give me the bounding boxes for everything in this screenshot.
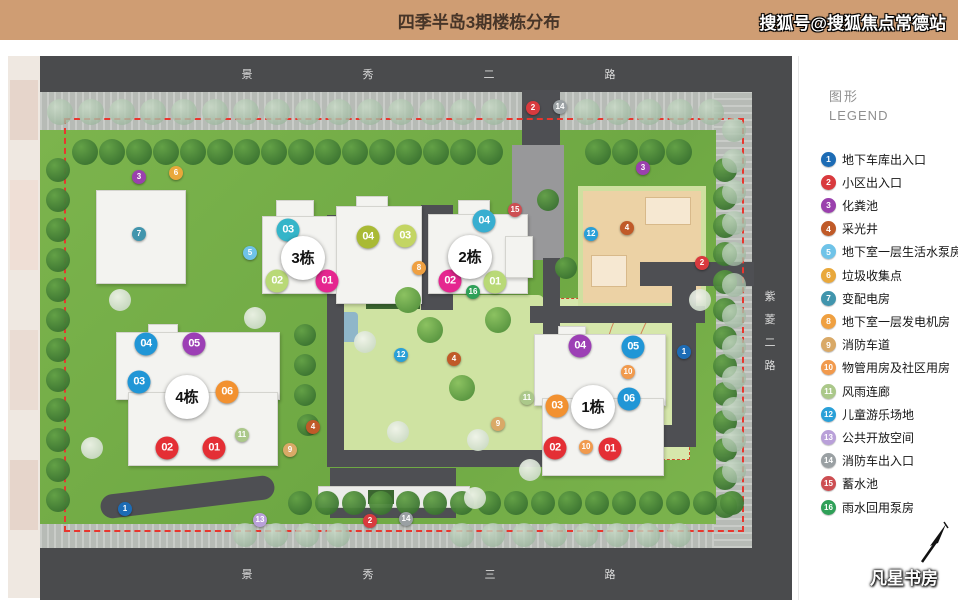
building-label-4栋: 4栋 bbox=[165, 375, 209, 419]
tree bbox=[244, 307, 266, 329]
tree bbox=[78, 99, 104, 125]
legend-item-16: 16雨水回用泵房 bbox=[821, 499, 914, 515]
tree bbox=[485, 307, 511, 333]
tree bbox=[342, 491, 366, 515]
unit-badge-b4-04: 04 bbox=[135, 333, 158, 356]
tree bbox=[574, 523, 598, 547]
legend-label: 采光井 bbox=[842, 220, 878, 237]
legend-badge: 13 bbox=[821, 430, 836, 445]
tree bbox=[417, 317, 443, 343]
brand-logo-icon bbox=[834, 562, 862, 590]
legend-title-cn: 图形 bbox=[829, 86, 859, 105]
adjacent-building bbox=[10, 80, 38, 140]
road-top bbox=[40, 56, 792, 92]
legend-label: 化粪池 bbox=[842, 197, 878, 214]
tree bbox=[555, 257, 577, 279]
map-marker-12: 12 bbox=[394, 348, 408, 362]
legend-item-8: 8地下室一层发电机房 bbox=[821, 313, 950, 329]
tree bbox=[722, 335, 746, 359]
tree bbox=[722, 304, 746, 328]
tree bbox=[202, 99, 228, 125]
tree bbox=[605, 99, 631, 125]
legend-badge: 2 bbox=[821, 175, 836, 190]
tree bbox=[531, 491, 555, 515]
map-marker-5: 5 bbox=[243, 246, 257, 260]
road-label-top: 秀 bbox=[363, 66, 374, 82]
legend-title-en: LEGEND bbox=[829, 108, 888, 123]
tree bbox=[585, 491, 609, 515]
map-marker-1: 1 bbox=[677, 345, 691, 359]
tree bbox=[666, 139, 692, 165]
unit-badge-b1-01: 01 bbox=[599, 438, 622, 461]
tree bbox=[722, 242, 746, 266]
tree bbox=[46, 398, 70, 422]
legend-label: 消防车出入口 bbox=[842, 452, 914, 469]
tree bbox=[667, 523, 691, 547]
tree bbox=[639, 491, 663, 515]
tree bbox=[295, 99, 321, 125]
unit-badge-b4-03: 03 bbox=[128, 371, 151, 394]
legend-item-6: 6垃圾收集点 bbox=[821, 267, 902, 283]
tree bbox=[354, 331, 376, 353]
site-boundary bbox=[64, 118, 744, 532]
unit-badge-b4-02: 02 bbox=[156, 437, 179, 460]
tree bbox=[261, 139, 287, 165]
tree bbox=[234, 139, 260, 165]
legend-label: 地下车库出入口 bbox=[842, 151, 926, 168]
tree bbox=[264, 99, 290, 125]
tree bbox=[233, 523, 257, 547]
tree bbox=[574, 99, 600, 125]
tree bbox=[46, 188, 70, 212]
map-marker-6: 6 bbox=[169, 166, 183, 180]
tree bbox=[295, 523, 319, 547]
map-marker-10: 10 bbox=[579, 440, 593, 454]
tree bbox=[612, 139, 638, 165]
tree bbox=[264, 523, 288, 547]
legend-panel: 图形 LEGEND 1地下车库出入口2小区出入口3化粪池4采光井5地下室一层生活… bbox=[798, 56, 958, 600]
tree bbox=[693, 491, 717, 515]
page: 四季半岛3期楼栋分布 搜狐号@搜狐焦点常德站 bbox=[0, 0, 958, 608]
tree bbox=[395, 287, 421, 313]
tree bbox=[288, 491, 312, 515]
legend-badge: 8 bbox=[821, 314, 836, 329]
tree bbox=[722, 118, 746, 142]
road-right bbox=[752, 56, 792, 600]
tree bbox=[450, 523, 474, 547]
map-marker-3: 3 bbox=[636, 161, 650, 175]
adjacent-building bbox=[10, 330, 38, 410]
tree bbox=[81, 437, 103, 459]
tree bbox=[233, 99, 259, 125]
tree bbox=[464, 487, 486, 509]
legend-label: 雨水回用泵房 bbox=[842, 499, 914, 516]
tree bbox=[46, 458, 70, 482]
legend-label: 地下室一层生活水泵房 bbox=[842, 243, 958, 260]
legend-label: 垃圾收集点 bbox=[842, 267, 902, 284]
tree bbox=[481, 99, 507, 125]
tree bbox=[467, 429, 489, 451]
legend-item-7: 7变配电房 bbox=[821, 290, 890, 306]
tree bbox=[450, 139, 476, 165]
unit-badge-b2-03: 03 bbox=[394, 225, 417, 248]
legend-item-5: 5地下室一层生活水泵房 bbox=[821, 244, 958, 260]
tree bbox=[99, 139, 125, 165]
tree bbox=[636, 99, 662, 125]
tree bbox=[326, 99, 352, 125]
tree bbox=[722, 459, 746, 483]
map-marker-11: 11 bbox=[520, 391, 534, 405]
map-marker-12: 12 bbox=[584, 227, 598, 241]
road-label-right: 二 bbox=[765, 334, 776, 350]
building-label-1栋: 1栋 bbox=[571, 385, 615, 429]
map-marker-1: 1 bbox=[118, 502, 132, 516]
map-marker-15: 15 bbox=[508, 203, 522, 217]
tree bbox=[315, 139, 341, 165]
tree bbox=[666, 491, 690, 515]
tree bbox=[180, 139, 206, 165]
tree bbox=[46, 368, 70, 392]
map-marker-2: 2 bbox=[695, 256, 709, 270]
tree bbox=[126, 139, 152, 165]
legend-badge: 16 bbox=[821, 500, 836, 515]
tree bbox=[72, 139, 98, 165]
unit-badge-b4-01: 01 bbox=[203, 437, 226, 460]
tree bbox=[140, 99, 166, 125]
unit-badge-b1-05: 05 bbox=[622, 336, 645, 359]
tree bbox=[326, 523, 350, 547]
legend-label: 消防车道 bbox=[842, 336, 890, 353]
tree bbox=[585, 139, 611, 165]
legend-item-14: 14消防车出入口 bbox=[821, 453, 914, 469]
tree bbox=[636, 523, 660, 547]
tree bbox=[109, 99, 135, 125]
tree bbox=[512, 523, 536, 547]
tree bbox=[294, 354, 316, 376]
road-label-right: 路 bbox=[765, 357, 776, 373]
tree bbox=[689, 289, 711, 311]
map-marker-4: 4 bbox=[620, 221, 634, 235]
tree bbox=[396, 139, 422, 165]
legend-badge: 3 bbox=[821, 198, 836, 213]
tree bbox=[109, 289, 131, 311]
tree bbox=[294, 324, 316, 346]
road-label-top: 景 bbox=[242, 66, 253, 82]
tree bbox=[315, 491, 339, 515]
road-label-bottom: 路 bbox=[605, 566, 616, 582]
legend-label: 公共开放空间 bbox=[842, 429, 914, 446]
tree bbox=[722, 180, 746, 204]
tree bbox=[342, 139, 368, 165]
unit-badge-b1-06: 06 bbox=[618, 388, 641, 411]
map-marker-2: 2 bbox=[363, 514, 377, 528]
adjacent-building bbox=[10, 180, 38, 270]
legend-label: 变配电房 bbox=[842, 290, 890, 307]
tree bbox=[519, 459, 541, 481]
adjacent-building bbox=[10, 460, 38, 530]
tree bbox=[387, 421, 409, 443]
compass-icon bbox=[908, 520, 952, 564]
legend-badge: 7 bbox=[821, 291, 836, 306]
map-marker-11: 11 bbox=[235, 428, 249, 442]
legend-item-11: 11风雨连廊 bbox=[821, 383, 890, 399]
legend-label: 小区出入口 bbox=[842, 174, 902, 191]
map-marker-3: 3 bbox=[132, 170, 146, 184]
tree bbox=[294, 384, 316, 406]
unit-badge-b1-03: 03 bbox=[546, 395, 569, 418]
legend-label: 儿童游乐场地 bbox=[842, 406, 914, 423]
legend-item-13: 13公共开放空间 bbox=[821, 429, 914, 445]
tree bbox=[46, 278, 70, 302]
tree bbox=[153, 139, 179, 165]
brand-watermark: 凡星书房 bbox=[834, 562, 938, 590]
map-marker-9: 9 bbox=[283, 443, 297, 457]
road-label-right: 菱 bbox=[765, 311, 776, 327]
legend-item-1: 1地下车库出入口 bbox=[821, 151, 926, 167]
tree bbox=[288, 139, 314, 165]
tree bbox=[47, 99, 73, 125]
map-marker-14: 14 bbox=[399, 512, 413, 526]
map-marker-4: 4 bbox=[447, 352, 461, 366]
legend-badge: 5 bbox=[821, 244, 836, 259]
tree bbox=[667, 99, 693, 125]
brand-name: 凡星书房 bbox=[870, 564, 938, 589]
map-marker-7: 7 bbox=[132, 227, 146, 241]
legend-item-2: 2小区出入口 bbox=[821, 174, 902, 190]
tree bbox=[423, 491, 447, 515]
tree bbox=[369, 139, 395, 165]
legend-item-15: 15蓄水池 bbox=[821, 476, 878, 492]
tree bbox=[612, 491, 636, 515]
tree bbox=[46, 488, 70, 512]
unit-badge-b3-02: 02 bbox=[266, 270, 289, 293]
legend-badge: 10 bbox=[821, 360, 836, 375]
legend-badge: 12 bbox=[821, 407, 836, 422]
legend-item-9: 9消防车道 bbox=[821, 337, 890, 353]
legend-badge: 9 bbox=[821, 337, 836, 352]
map-marker-14: 14 bbox=[553, 100, 567, 114]
map-marker-4: 4 bbox=[306, 420, 320, 434]
legend-item-12: 12儿童游乐场地 bbox=[821, 406, 914, 422]
tree bbox=[722, 211, 746, 235]
unit-badge-b2-04: 04 bbox=[473, 210, 496, 233]
tree bbox=[423, 139, 449, 165]
map-marker-13: 13 bbox=[253, 513, 267, 527]
header-bar: 四季半岛3期楼栋分布 搜狐号@搜狐焦点常德站 bbox=[0, 0, 958, 40]
legend-item-4: 4采光井 bbox=[821, 221, 878, 237]
legend-badge: 6 bbox=[821, 268, 836, 283]
legend-label: 蓄水池 bbox=[842, 475, 878, 492]
legend-badge: 4 bbox=[821, 221, 836, 236]
legend-label: 风雨连廊 bbox=[842, 383, 890, 400]
road-label-top: 二 bbox=[484, 66, 495, 82]
legend-label: 地下室一层发电机房 bbox=[842, 313, 950, 330]
road-label-bottom: 秀 bbox=[363, 566, 374, 582]
tree bbox=[46, 338, 70, 362]
tree bbox=[46, 428, 70, 452]
tree bbox=[537, 189, 559, 211]
tree bbox=[388, 99, 414, 125]
unit-badge-b1-02: 02 bbox=[544, 437, 567, 460]
site-plan-map: 1122233444567899101011111212131414151603… bbox=[0, 40, 798, 608]
building-label-2栋: 2栋 bbox=[448, 235, 492, 279]
tree bbox=[477, 139, 503, 165]
legend-label: 物管用房及社区用房 bbox=[842, 359, 950, 376]
unit-badge-b3-04: 04 bbox=[357, 226, 380, 249]
legend-badge: 14 bbox=[821, 453, 836, 468]
legend-badge: 15 bbox=[821, 476, 836, 491]
tree bbox=[369, 491, 393, 515]
unit-badge-b4-06: 06 bbox=[216, 381, 239, 404]
road-label-top: 路 bbox=[605, 66, 616, 82]
tree bbox=[720, 491, 744, 515]
tree bbox=[46, 158, 70, 182]
tree bbox=[605, 523, 629, 547]
tree bbox=[450, 99, 476, 125]
tree bbox=[207, 139, 233, 165]
road-label-bottom: 三 bbox=[485, 566, 496, 582]
building-label-3栋: 3栋 bbox=[281, 236, 325, 280]
tree bbox=[357, 99, 383, 125]
tree bbox=[543, 523, 567, 547]
tree bbox=[481, 523, 505, 547]
map-marker-16: 16 bbox=[466, 285, 480, 299]
road-label-bottom: 景 bbox=[242, 566, 253, 582]
tree bbox=[419, 99, 445, 125]
legend-badge: 11 bbox=[821, 384, 836, 399]
sohu-watermark: 搜狐号@搜狐焦点常德站 bbox=[759, 9, 946, 34]
legend-item-3: 3化粪池 bbox=[821, 197, 878, 213]
tree bbox=[46, 248, 70, 272]
tree bbox=[722, 397, 746, 421]
tree bbox=[558, 491, 582, 515]
tree bbox=[722, 366, 746, 390]
legend-badge: 1 bbox=[821, 152, 836, 167]
map-marker-2: 2 bbox=[526, 101, 540, 115]
tree bbox=[504, 491, 528, 515]
tree bbox=[46, 308, 70, 332]
unit-badge-b2-01: 01 bbox=[484, 271, 507, 294]
road-bottom bbox=[40, 548, 792, 600]
tree bbox=[698, 99, 724, 125]
map-marker-9: 9 bbox=[491, 417, 505, 431]
unit-badge-b4-05: 05 bbox=[183, 333, 206, 356]
map-marker-10: 10 bbox=[621, 365, 635, 379]
tree bbox=[171, 99, 197, 125]
map-marker-8: 8 bbox=[412, 261, 426, 275]
tree bbox=[449, 375, 475, 401]
tree bbox=[722, 428, 746, 452]
unit-badge-b1-04: 04 bbox=[569, 335, 592, 358]
legend-item-10: 10物管用房及社区用房 bbox=[821, 360, 950, 376]
tree bbox=[722, 273, 746, 297]
road-label-right: 紫 bbox=[765, 288, 776, 304]
tree bbox=[46, 218, 70, 242]
tree bbox=[722, 149, 746, 173]
